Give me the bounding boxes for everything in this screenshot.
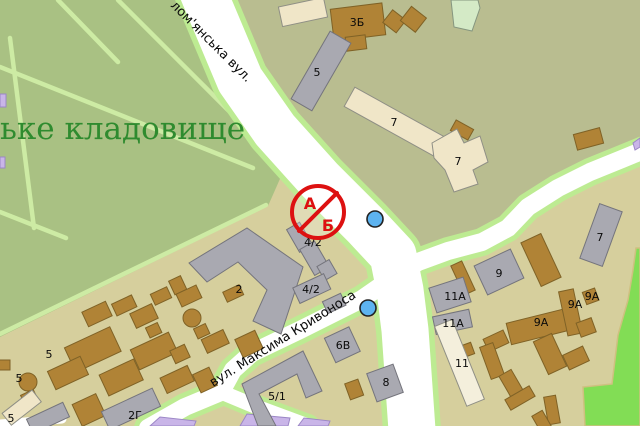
cemetery-label: ьке кладовище [0, 111, 245, 147]
building-label: 3Б [350, 16, 365, 29]
building [0, 360, 10, 370]
map-point-marker[interactable] [367, 211, 383, 227]
building-label: 5 [46, 348, 53, 361]
building-label: 4/2 [302, 283, 320, 296]
building-label: 11А [442, 317, 464, 330]
map-svg[interactable]: ьке кладовище лом'янська вул. вул. Макси… [0, 0, 640, 426]
round-building [183, 309, 201, 327]
building-label: 8 [383, 376, 390, 389]
building-label: 7 [597, 231, 604, 244]
building-label: 5/1 [268, 390, 286, 403]
building-label: 5 [8, 412, 15, 425]
prohibition-letter-b: Б [322, 216, 334, 235]
building-label: 9А [534, 316, 549, 329]
building-label: 7 [455, 155, 462, 168]
building-label: 2 [236, 283, 243, 296]
building-label: 9А [585, 290, 600, 303]
building-label: 11 [455, 357, 469, 370]
building-label: 11А [444, 290, 466, 303]
prohibition-letter-a: А [304, 194, 317, 213]
building-label: 5 [16, 372, 23, 385]
map-canvas[interactable]: ьке кладовище лом'янська вул. вул. Макси… [0, 0, 640, 426]
building-label: 2Г [128, 409, 142, 422]
building-label: 9А [568, 298, 583, 311]
building-label: 6В [336, 339, 351, 352]
building-label: 5 [314, 66, 321, 79]
prohibition-sign: А Б [292, 186, 344, 238]
building-label: 9 [496, 267, 503, 280]
map-point-marker[interactable] [360, 300, 376, 316]
building-label: 7 [391, 116, 398, 129]
